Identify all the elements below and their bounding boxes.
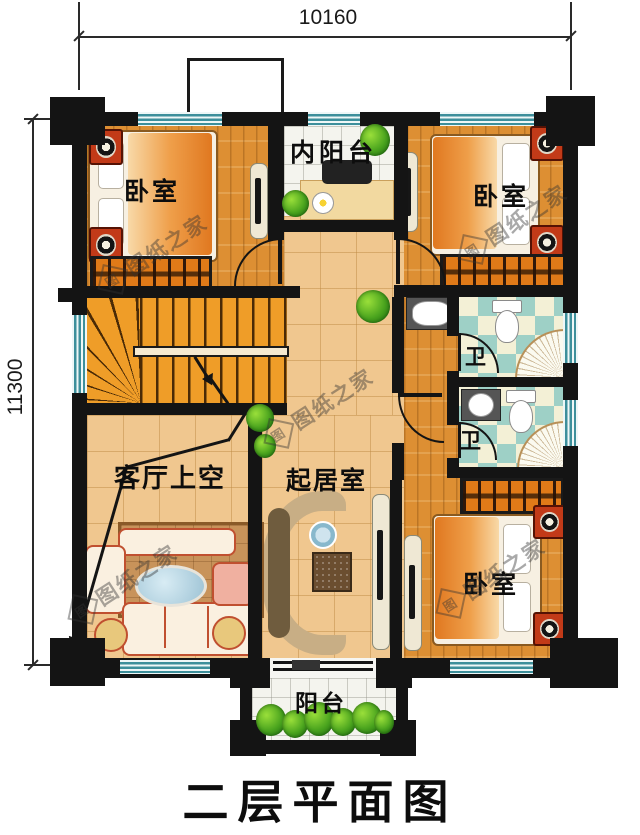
desk-plate: [312, 192, 334, 214]
toilet-upper-bowl: [495, 310, 519, 343]
window-right-bath-upper: [563, 313, 578, 363]
toilet-lower-bowl: [509, 400, 533, 433]
corner-column-tl: [50, 97, 105, 145]
balcony-sliding-door-rail2: [273, 668, 373, 671]
window-top-bedroom2: [440, 112, 534, 126]
chimney-outline: [187, 58, 284, 119]
wall-bath-lower-left-a: [447, 387, 459, 425]
sitting-room-rug: [312, 552, 352, 592]
window-top-bedroom1: [138, 112, 222, 126]
wall-hall-right-upper: [392, 297, 404, 393]
door-leaf-bath-upper: [458, 333, 461, 371]
wall-inner-balcony-bottom: [268, 220, 394, 232]
top-dimension-value: 10160: [296, 6, 360, 30]
room-label-bath-upper: 卫: [465, 341, 486, 371]
watermark-seal: 图: [435, 588, 466, 619]
left-dimension-value: 11300: [4, 355, 28, 419]
wall-bath-upper-left-a: [447, 297, 459, 336]
room-label-inner-balcony: 内阳台: [290, 133, 377, 169]
stair-handrail: [133, 346, 289, 357]
top-dimension-line: [79, 36, 572, 38]
wall-hall-right-lower: [392, 443, 404, 480]
balcony-sliding-door-rail: [273, 661, 373, 664]
window-right-bath-lower: [563, 400, 578, 446]
watermark-seal: 图: [67, 594, 98, 625]
window-bottom-bedroom3: [450, 660, 533, 674]
corner-column-br: [550, 638, 618, 688]
plant-hall: [356, 290, 390, 323]
wall-between-baths: [447, 377, 563, 387]
watermark-seal: 图: [457, 234, 488, 265]
wall-bedroom2-left: [394, 126, 408, 240]
curved-sofa-cushions: [268, 508, 290, 638]
window-top-inner-balcony: [308, 112, 360, 126]
door-leaf-bedroom2: [396, 238, 400, 284]
wall-bath-lower-left-b: [447, 458, 459, 467]
wall-left-stub: [58, 288, 84, 302]
wall-below-bath-lower: [447, 467, 563, 478]
sofa-seat-divider: [207, 606, 209, 648]
nightstand: [533, 505, 566, 539]
room-label-sitting-room: 起居室: [286, 461, 367, 497]
lower-bath-sink: [468, 393, 494, 417]
watermark-seal: 图: [263, 418, 294, 449]
top-dimension-ext-right: [570, 2, 572, 90]
wall-below-bedroom2: [394, 285, 563, 297]
door-leaf-bedroom3: [398, 393, 442, 397]
corner-column-tr: [546, 96, 595, 146]
left-dimension-line: [32, 119, 34, 666]
room-label-balcony: 阳台: [295, 684, 347, 718]
sofa-seat-divider: [164, 606, 166, 648]
balcony-wall-bottom: [262, 740, 386, 754]
lobby-washbasin: [412, 301, 451, 326]
door-leaf-bedroom1: [278, 238, 282, 284]
plan-title: 二层平面图: [95, 766, 545, 832]
window-bottom-living: [120, 660, 210, 674]
room-label-living-void: 客厅上空: [114, 458, 226, 495]
corner-column-bl: [50, 638, 105, 686]
watermark-seal: 图: [97, 264, 128, 295]
top-dimension-ext-left: [78, 2, 80, 90]
balcony-plant: [374, 710, 394, 734]
sitting-room-side-table: [309, 521, 337, 549]
balcony-sliding-door-panel: [292, 660, 320, 670]
tv-bedroom1: [255, 178, 261, 224]
room-label-bedroom-top-left: 卧室: [124, 172, 180, 208]
tv-bedroom3: [409, 565, 415, 619]
side-table-round: [212, 616, 246, 650]
plant-inner-balcony-bl: [282, 190, 309, 217]
tv-sitting-room: [377, 530, 383, 600]
window-left-stairs: [72, 315, 87, 393]
floor-plan-canvas: 10160 11300: [0, 0, 640, 835]
room-label-bath-lower: 卫: [460, 425, 481, 455]
wall-sitting-bedroom3: [390, 480, 402, 658]
stair-upper-flight: [140, 298, 287, 347]
